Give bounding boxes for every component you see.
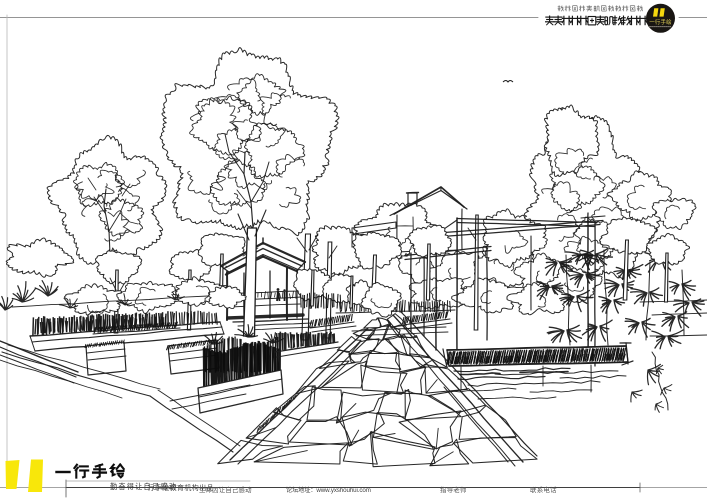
svg-text:生命因让自己感动: 生命因让自己感动 [199,485,252,494]
svg-text:指导老师: 指导老师 [440,485,467,494]
svg-text:联系电话: 联系电话 [530,485,557,494]
svg-text:一行手绘: 一行手绘 [649,18,672,26]
svg-text:论坛地址：www.yxshouhui.com: 论坛地址：www.yxshouhui.com [286,486,371,494]
